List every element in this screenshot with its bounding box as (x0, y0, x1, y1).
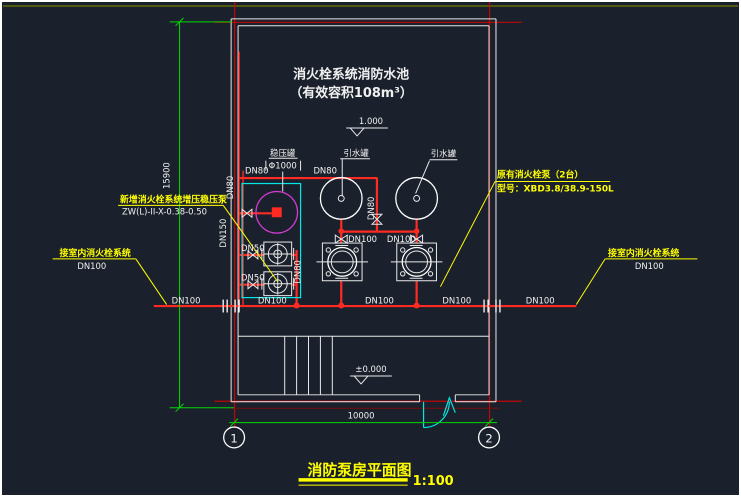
priming-tank-2-label: 引水罐 (431, 149, 457, 159)
dn100-label-drop1: DN100 (348, 234, 377, 244)
left-system-size: DN100 (77, 261, 106, 271)
pool-level-value: 1.000 (359, 116, 383, 126)
fire-pump-room-plan: 1.000 ±0.000 15900 10000 1 2 新增消火栓系统增压稳压… (2, 2, 739, 495)
axis-bubble-2: 2 (479, 427, 500, 448)
fire-pump-1 (316, 243, 368, 281)
surge-tank-diameter: Φ1000 (269, 161, 297, 171)
dn100-label-header-outright: DN100 (526, 296, 555, 306)
cad-drawing-canvas: 1.000 ±0.000 15900 10000 1 2 新增消火栓系统增压稳压… (0, 0, 741, 497)
tank-title-line2: （有效容积108m³） (290, 85, 413, 101)
annotation-left-system: 接室内消火栓系统 DN100 (53, 247, 167, 305)
fire-pump-2 (391, 243, 443, 281)
dn100-label-header-outleft: DN100 (172, 296, 201, 306)
valve-symbols (242, 209, 423, 288)
dn100-label-header-2: DN100 (365, 296, 394, 306)
stairs (285, 336, 333, 395)
pool-level-marker: 1.000 (346, 116, 388, 136)
stabilizer-pump-2 (262, 272, 294, 296)
left-system-label: 接室内消火栓系统 (60, 247, 131, 259)
dimension-width: 10000 (229, 411, 497, 427)
annotation-existing-pump: 原有消火栓泵（2台） 型号：XBD3.8/38.9-150L (440, 169, 614, 287)
dim-height-text: 15900 (162, 162, 172, 189)
dn80-label-surge-riser: DN80 (293, 260, 303, 284)
dn100-label-header-3: DN100 (442, 296, 471, 306)
tank-title-line1: 消火栓系统消防水池 (293, 66, 409, 82)
floor-level-value: ±0.000 (355, 364, 386, 374)
new-pump-label-line1: 新增消火栓系统增压稳压泵 (120, 193, 227, 205)
axis-bubble-1: 1 (224, 427, 245, 448)
dn50-label-pump1: DN50 (241, 243, 265, 253)
dn80-label-wall-riser: DN80 (225, 176, 235, 200)
dim-width-text: 10000 (348, 411, 375, 421)
dn80-label-right: DN80 (313, 166, 337, 176)
existing-pump-label-line2: 型号：XBD3.8/38.9-150L (497, 182, 614, 194)
axis-2-number: 2 (485, 431, 493, 445)
drawing-title: 消防泵房平面图 (308, 461, 412, 479)
priming-tank-1-label: 引水罐 (343, 148, 369, 158)
new-pump-label-line2: ZW(L)-II-X-0.38-0.50 (122, 206, 207, 216)
dn100-label-drop2: DN100 (387, 234, 416, 244)
drawing-title-block: 消防泵房平面图 1:100 (299, 461, 454, 489)
equipment-labels: 稳压罐 Φ1000 引水罐 引水罐 (269, 148, 458, 171)
annotation-right-system: 接室内消火栓系统 DN100 (576, 247, 697, 305)
stabilizer-pump-1 (262, 242, 294, 266)
existing-pump-label-line1: 原有消火栓泵（2台） (497, 169, 583, 181)
dn100-label-header-1: DN100 (258, 296, 287, 306)
dn50-label-pump2: DN50 (241, 273, 265, 283)
right-system-label: 接室内消火栓系统 (608, 247, 679, 259)
drawing-scale: 1:100 (413, 474, 454, 489)
dn150-label-wall-riser: DN150 (218, 219, 228, 248)
dn80-label-left: DN80 (245, 166, 269, 176)
floor-level-marker: ±0.000 (350, 364, 392, 384)
priming-tank-2 (396, 161, 438, 220)
water-tank-title: 消火栓系统消防水池 （有效容积108m³） (290, 66, 413, 101)
surge-tank-label: 稳压罐 (270, 148, 296, 158)
axis-1-number: 1 (230, 431, 238, 445)
right-system-size: DN100 (635, 261, 664, 271)
dn80-label-drop: DN80 (366, 197, 376, 221)
